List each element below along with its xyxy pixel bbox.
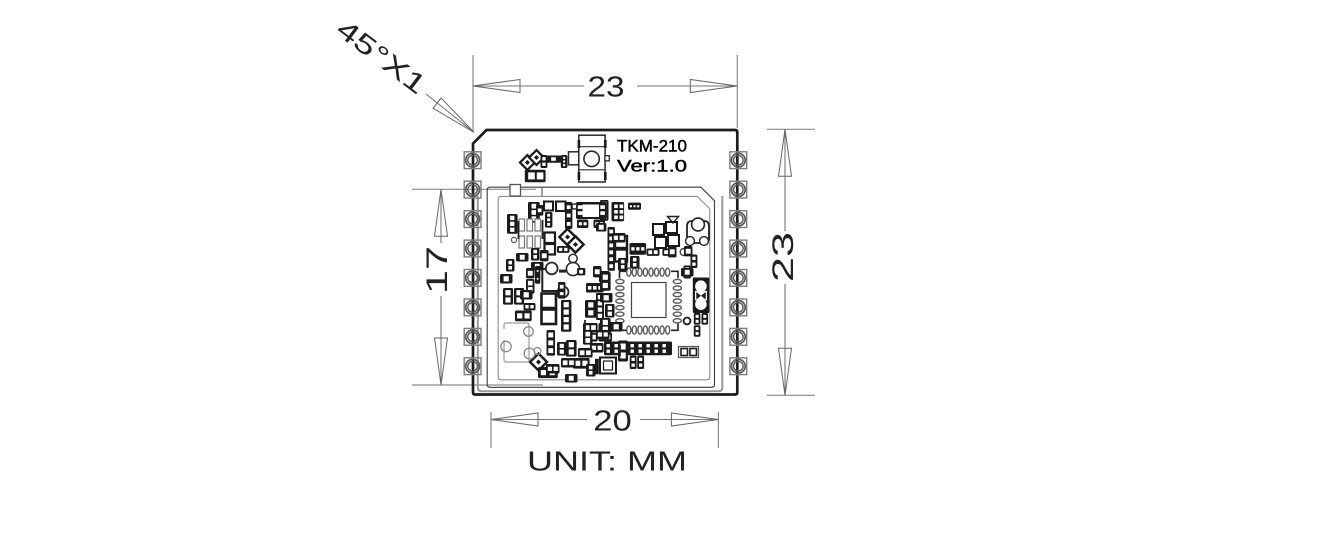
svg-text:17: 17 xyxy=(421,246,454,294)
svg-text:23: 23 xyxy=(767,232,800,282)
svg-text:23: 23 xyxy=(588,72,625,104)
svg-text:UNIT: MM: UNIT: MM xyxy=(527,446,687,477)
svg-text:20: 20 xyxy=(593,405,632,437)
svg-text:Ver:1.0: Ver:1.0 xyxy=(617,157,687,176)
svg-text:TKM-210: TKM-210 xyxy=(617,137,687,156)
